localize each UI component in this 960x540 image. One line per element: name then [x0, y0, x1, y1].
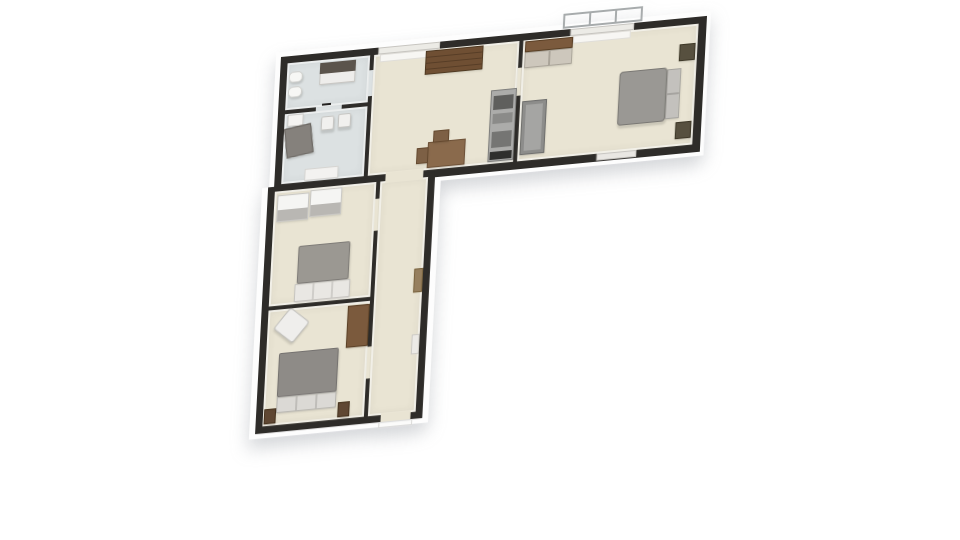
- utility-chair-b: [338, 113, 352, 128]
- appliance-oven: [493, 94, 514, 110]
- bedroom-sofa-seat: [523, 103, 542, 151]
- dining-table: [427, 139, 466, 169]
- nightstand-d: [337, 401, 350, 417]
- bed-pillows: [665, 68, 682, 119]
- wardrobe-lower: [346, 304, 370, 348]
- wardrobe-b: [309, 187, 342, 217]
- hall-radiator: [411, 334, 420, 355]
- utility-chair-a: [321, 115, 335, 130]
- utility-armchair: [284, 123, 313, 159]
- nightstand-b: [675, 121, 692, 140]
- bed-lower-blanket: [277, 348, 339, 398]
- dining-chair-a: [416, 147, 429, 164]
- appliance-mid-drawer: [492, 112, 512, 124]
- hall-shelf: [413, 268, 423, 293]
- dining-chair-b: [433, 129, 450, 143]
- nightstand-c: [263, 408, 276, 424]
- bed-blanket: [617, 67, 668, 126]
- wardrobe-a: [276, 192, 309, 222]
- appliance-lower-drawer: [491, 130, 512, 148]
- floor-plan-canvas: [0, 0, 960, 540]
- bed-upper-blanket: [297, 241, 351, 284]
- nightstand-a: [679, 43, 696, 62]
